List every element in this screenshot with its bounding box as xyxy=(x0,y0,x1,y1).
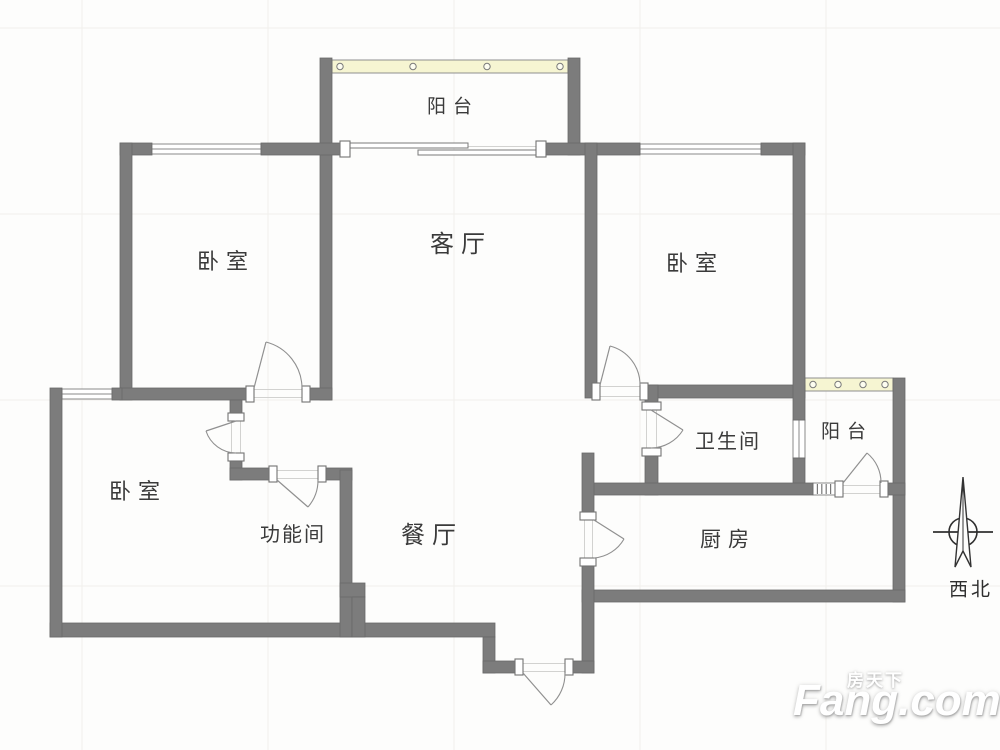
door-jamb xyxy=(340,141,350,157)
wall xyxy=(340,470,352,637)
door-jamb xyxy=(642,448,661,456)
balcony-right-window-band xyxy=(805,378,893,391)
door-jamb xyxy=(880,481,888,497)
door-threshold-line xyxy=(523,671,565,672)
wall xyxy=(340,583,365,597)
room-label-function-room: 功能间 xyxy=(260,525,326,545)
balcony-right-window-band-circle xyxy=(882,381,888,387)
wall xyxy=(582,590,905,602)
living-balcony-sliding-panel-2 xyxy=(418,150,537,155)
wall xyxy=(112,388,122,400)
wall xyxy=(230,468,269,480)
room-label-dining-room: 餐厅 xyxy=(401,524,463,548)
room-label-balcony-right: 阳台 xyxy=(821,423,873,442)
room-label-bedroom-lower-left: 卧室 xyxy=(109,481,167,503)
wall xyxy=(120,388,246,400)
door-threshold-line xyxy=(600,386,640,387)
door-threshold-line xyxy=(656,410,657,448)
room-label-bathroom: 卫生间 xyxy=(695,432,761,452)
compass-icon xyxy=(925,465,1000,580)
door-threshold-line xyxy=(592,520,593,558)
wall xyxy=(793,143,805,420)
door-threshold-line xyxy=(843,485,880,486)
floor-plan-canvas: 阳台卧室客厅卧室卧室功能间餐厅卫生间阳台厨房 西北 房天下 Fang.com xyxy=(0,0,1000,750)
wall xyxy=(888,483,905,495)
door-threshold-line xyxy=(277,478,318,479)
door-threshold-line xyxy=(254,397,302,398)
wall xyxy=(120,143,132,400)
compass-label: 西北 xyxy=(949,575,993,602)
door-jamb xyxy=(642,402,661,410)
wall xyxy=(261,143,340,155)
function-room-door-arc xyxy=(308,480,318,507)
door-threshold-line xyxy=(600,396,640,397)
door-threshold-line xyxy=(843,493,880,494)
door-jamb xyxy=(640,383,648,400)
wall xyxy=(582,453,594,512)
door-threshold-line xyxy=(231,421,232,453)
door-threshold-line xyxy=(584,520,585,558)
wall xyxy=(648,385,805,398)
door-jamb xyxy=(228,453,244,461)
door-jamb xyxy=(536,141,546,157)
door-jamb xyxy=(269,466,277,482)
balcony-right-window-band-circle xyxy=(810,381,816,387)
wall xyxy=(50,623,495,637)
bathroom-door-leaf xyxy=(651,410,683,430)
wall xyxy=(230,400,242,413)
kitchen-balcony-small-window xyxy=(813,483,835,495)
balcony-right-door-arc xyxy=(867,453,881,483)
bathroom-door-arc xyxy=(651,430,683,448)
wall xyxy=(573,661,594,673)
door-jamb xyxy=(515,659,523,675)
entrance-door-arc xyxy=(551,673,565,705)
wall xyxy=(50,388,62,637)
function-room-door-leaf xyxy=(277,480,308,507)
balcony-top-window-band-circle xyxy=(410,63,416,69)
balcony-top-window-band-circle xyxy=(557,63,563,69)
room-label-balcony-top: 阳台 xyxy=(427,98,479,117)
door-threshold-line xyxy=(523,663,565,664)
room-label-kitchen: 厨房 xyxy=(700,530,756,551)
kitchen-door-arc xyxy=(594,539,624,558)
balcony-top-window-band-circle xyxy=(337,63,343,69)
wall xyxy=(320,58,332,400)
bedroom-upper-right-door-leaf xyxy=(600,346,610,385)
balcony-top-window-band xyxy=(332,60,568,73)
door-threshold-line xyxy=(240,421,241,453)
room-label-bedroom-upper-left: 卧室 xyxy=(197,251,255,273)
door-jamb xyxy=(246,386,254,402)
room-label-living-room: 客厅 xyxy=(430,233,492,257)
bedroom-upper-left-door-arc xyxy=(266,342,302,388)
balcony-right-window-band-circle xyxy=(835,381,841,387)
door-jamb xyxy=(592,383,600,400)
door-jamb xyxy=(565,659,573,675)
living-balcony-sliding-panel-1 xyxy=(350,143,468,148)
door-jamb xyxy=(580,558,596,566)
wall xyxy=(568,58,580,155)
door-jamb xyxy=(302,386,310,402)
door-jamb xyxy=(835,481,843,497)
kitchen-door-leaf xyxy=(594,520,624,539)
wall xyxy=(582,566,594,673)
entrance-door-leaf xyxy=(523,673,551,705)
wall xyxy=(352,597,365,637)
bedroom-upper-right-door-arc xyxy=(610,346,640,385)
balcony-top-window-band-circle xyxy=(484,63,490,69)
balcony-right-window-band-circle xyxy=(860,381,866,387)
bedroom-upper-left-door-leaf xyxy=(254,342,266,388)
wall xyxy=(592,483,813,495)
door-jamb xyxy=(580,512,596,520)
door-threshold-line xyxy=(646,410,647,448)
door-threshold-line xyxy=(254,389,302,390)
door-threshold-line xyxy=(277,470,318,471)
balcony-right-door-leaf xyxy=(843,453,867,483)
floor-plan-drawing xyxy=(0,0,1000,750)
wall xyxy=(585,143,597,398)
room-label-bedroom-upper-right: 卧室 xyxy=(666,253,724,275)
door-jamb xyxy=(318,466,326,482)
door-jamb xyxy=(228,413,244,421)
